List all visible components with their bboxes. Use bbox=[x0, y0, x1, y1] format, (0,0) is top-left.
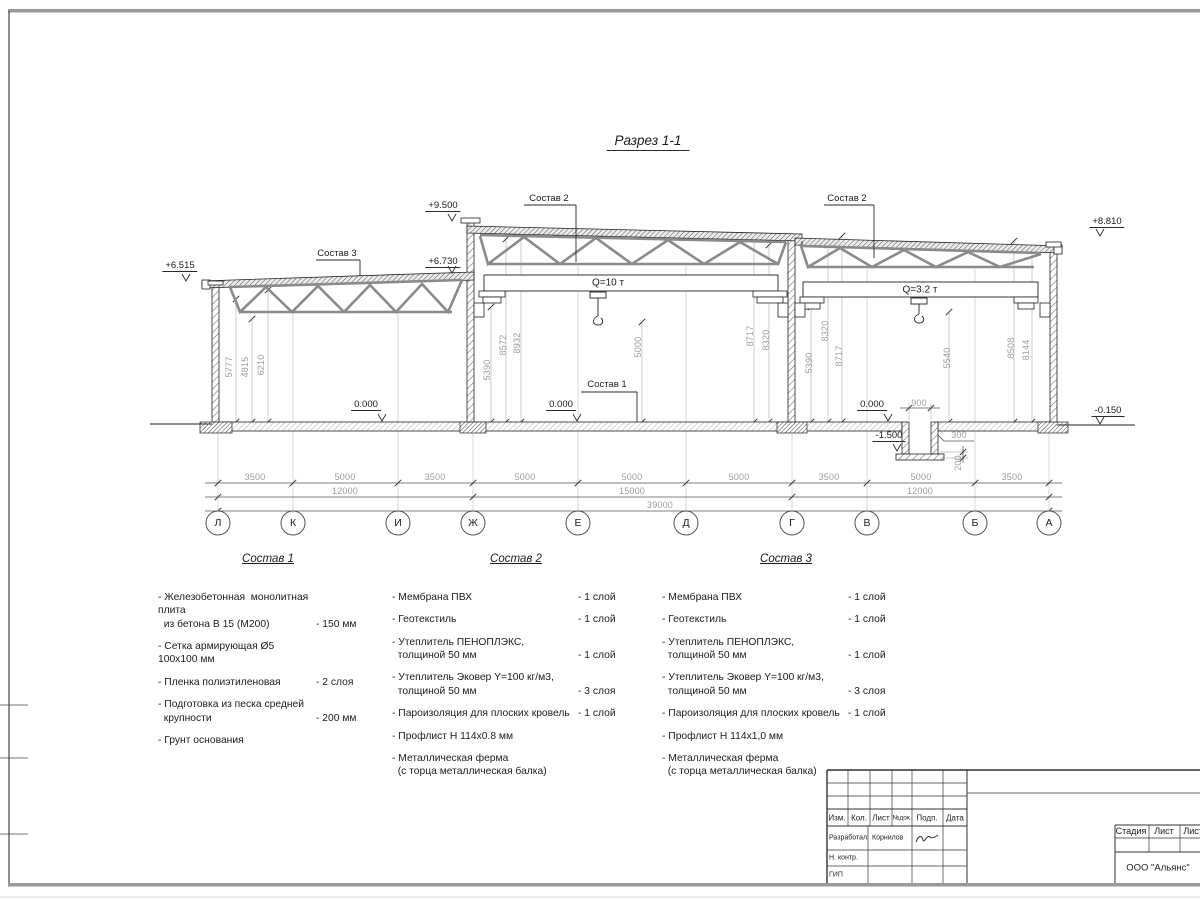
elevation-high-roof: +9.500 bbox=[425, 200, 460, 212]
composition-item-value: - 1 слой bbox=[848, 707, 910, 720]
composition-item-name: - Пароизоляция для плоских кровель bbox=[662, 707, 848, 720]
height-dim: 8508 bbox=[1006, 338, 1016, 359]
composition-item: - Мембрана ПВХ - 1 слой bbox=[392, 591, 640, 604]
composition-item: - Железобетонная монолитная плита из бет… bbox=[158, 591, 378, 631]
composition-item: - Металлическая ферма (с торца металличе… bbox=[662, 752, 910, 779]
stamp-developer-name: Корнилов bbox=[872, 835, 903, 842]
block-dim: 12000 bbox=[332, 486, 358, 496]
composition-item: - Грунт основания bbox=[158, 734, 378, 747]
block-dim: 12000 bbox=[907, 486, 933, 496]
composition-item-value: - 1 слой bbox=[578, 707, 640, 720]
composition-list-2: Состав 2 - Мембрана ПВХ - 1 слой - Геоте… bbox=[392, 552, 640, 788]
pit-wall-dim: 300 bbox=[951, 430, 967, 440]
composition-item-value: - 1 слой bbox=[848, 591, 910, 604]
crane-capacity-right: Q=3.2 т bbox=[903, 285, 938, 296]
span-dim: 5000 bbox=[515, 472, 536, 482]
composition-item-name: - Утеплитель ПЕНОПЛЭКС, толщиной 50 мм bbox=[662, 636, 848, 663]
composition-item: - Геотекстиль - 1 слой bbox=[392, 613, 640, 626]
height-dim: 6210 bbox=[256, 355, 266, 376]
height-dim: 8320 bbox=[820, 321, 830, 342]
stamp-stage-header: Стадия bbox=[1116, 826, 1147, 836]
crane-capacity-mid: Q=10 т bbox=[592, 278, 624, 289]
composition-item-name: - Утеплитель Эковер Y=100 кг/м3, толщино… bbox=[662, 671, 848, 698]
composition-item-name: - Утеплитель ПЕНОПЛЭКС, толщиной 50 мм bbox=[392, 636, 578, 663]
axis-bubble-label: Ж bbox=[468, 517, 478, 529]
elevation-mark-icon bbox=[182, 274, 190, 281]
axis-bubble-label: А bbox=[1045, 517, 1052, 529]
composition-item: - Пароизоляция для плоских кровель - 1 с… bbox=[662, 707, 910, 720]
height-dim: 4815 bbox=[240, 357, 250, 378]
composition-item-name: - Утеплитель Эковер Y=100 кг/м3, толщино… bbox=[392, 671, 578, 698]
layer-ref-s1: Состав 1 bbox=[587, 379, 626, 390]
composition-item: - Пароизоляция для плоских кровель - 1 с… bbox=[392, 707, 640, 720]
composition-item-value: - 3 слоя bbox=[848, 685, 910, 698]
height-dim: 8572 bbox=[498, 335, 508, 356]
composition-item-name: - Металлическая ферма (с торца металличе… bbox=[392, 752, 578, 779]
composition-item-name: - Пароизоляция для плоских кровель bbox=[392, 707, 578, 720]
span-dim: 5000 bbox=[729, 472, 750, 482]
composition-list-1: Состав 1 - Железобетонная монолитная пли… bbox=[158, 552, 378, 756]
stamp-col-list: Лист bbox=[872, 814, 889, 823]
height-dim: 8144 bbox=[1021, 340, 1031, 361]
block-dim: 15000 bbox=[619, 486, 645, 496]
stamp-role-developer: Разработал bbox=[829, 835, 867, 842]
span-dim: 3500 bbox=[425, 472, 446, 482]
elevation-floor-right: 0.000 bbox=[857, 399, 887, 411]
axis-bubble-label: Д bbox=[682, 517, 689, 529]
composition-item-value: - 2 слоя bbox=[316, 676, 378, 689]
span-dim: 3500 bbox=[245, 472, 266, 482]
elevation-floor-mid: 0.000 bbox=[546, 399, 576, 411]
layer-ref-s3: Состав 3 bbox=[317, 248, 356, 259]
composition-item-name: - Пленка полиэтиленовая bbox=[158, 676, 316, 689]
composition-items: - Мембрана ПВХ - 1 слой - Геотекстиль - … bbox=[662, 591, 910, 779]
floor-and-pit bbox=[150, 422, 1135, 460]
height-dim: 5390 bbox=[804, 353, 814, 374]
axis-bubble-label: К bbox=[290, 517, 296, 529]
composition-item-name: - Мембрана ПВХ bbox=[662, 591, 848, 604]
stamp-col-podp: Подп. bbox=[916, 814, 937, 823]
composition-item-value: - 1 слой bbox=[848, 613, 910, 626]
composition-item: - Геотекстиль - 1 слой bbox=[662, 613, 910, 626]
leaders-and-marks bbox=[182, 205, 1104, 451]
composition-item-value: - 1 слой bbox=[848, 649, 910, 662]
elevation-left-eave: +6.515 bbox=[162, 260, 197, 272]
elevation-pit-bottom: -1.500 bbox=[873, 430, 906, 442]
composition-item-value: - 150 мм bbox=[316, 618, 378, 631]
composition-title: Состав 1 bbox=[158, 552, 378, 567]
axis-bubble-label: Л bbox=[215, 517, 222, 529]
span-dim: 5000 bbox=[335, 472, 356, 482]
axis-bubble-label: Б bbox=[972, 517, 979, 529]
composition-item: - Утеплитель Эковер Y=100 кг/м3, толщино… bbox=[392, 671, 640, 698]
elevation-right-roof: +8.810 bbox=[1089, 216, 1124, 228]
composition-item-name: - Железобетонная монолитная плита из бет… bbox=[158, 591, 316, 631]
composition-item: - Профлист Н 114х0.8 мм bbox=[392, 730, 640, 743]
composition-items: - Мембрана ПВХ - 1 слой - Геотекстиль - … bbox=[392, 591, 640, 779]
axis-bubble-label: Г bbox=[789, 517, 795, 529]
composition-item-name: - Профлист Н 114х1,0 мм bbox=[662, 730, 848, 743]
composition-item-name: - Геотекстиль bbox=[392, 613, 578, 626]
axis-bubble-label: Е bbox=[574, 517, 581, 529]
composition-item: - Утеплитель Эковер Y=100 кг/м3, толщино… bbox=[662, 671, 910, 698]
composition-item-value: - 3 слоя bbox=[578, 685, 640, 698]
composition-item-name: - Профлист Н 114х0.8 мм bbox=[392, 730, 578, 743]
span-dim: 5000 bbox=[911, 472, 932, 482]
stamp-sheet-header: Лист bbox=[1154, 826, 1174, 836]
composition-item: - Профлист Н 114х1,0 мм bbox=[662, 730, 910, 743]
axis-bubbles bbox=[206, 511, 1061, 535]
layer-ref-s2-right: Состав 2 bbox=[827, 193, 866, 204]
height-dim: 8717 bbox=[745, 326, 755, 347]
stamp-sheets-header: Листов bbox=[1183, 826, 1200, 836]
drawing-title: Разрез 1-1 bbox=[607, 133, 690, 151]
signature-icon bbox=[916, 835, 938, 842]
height-dim: 8320 bbox=[761, 330, 771, 351]
composition-item-value: - 1 слой bbox=[578, 591, 640, 604]
axis-bubble-label: В bbox=[863, 517, 870, 529]
composition-item-value: - 200 мм bbox=[316, 712, 378, 725]
pit-slab-dim: 200 bbox=[953, 455, 963, 471]
stamp-col-kol: Кол. bbox=[851, 814, 867, 823]
stamp-col-izm: Изм. bbox=[828, 814, 845, 823]
composition-item: - Металлическая ферма (с торца металличе… bbox=[392, 752, 640, 779]
composition-item: - Сетка армирующая Ø5 100х100 мм bbox=[158, 640, 378, 667]
composition-item-value: - 1 слой bbox=[578, 613, 640, 626]
height-dim: 8717 bbox=[834, 346, 844, 367]
composition-item-value: - 1 слой bbox=[578, 649, 640, 662]
stamp-role-ncontrol: Н. контр. bbox=[829, 855, 858, 862]
elevation-ground-right: -0.150 bbox=[1092, 405, 1125, 417]
span-dim: 3500 bbox=[819, 472, 840, 482]
axis-bubble-label: И bbox=[394, 517, 402, 529]
stamp-col-ndok: №док. bbox=[892, 815, 911, 822]
composition-item: - Пленка полиэтиленовая - 2 слоя bbox=[158, 676, 378, 689]
height-dim: 8932 bbox=[512, 333, 522, 354]
composition-item: - Мембрана ПВХ - 1 слой bbox=[662, 591, 910, 604]
span-dim: 3500 bbox=[1002, 472, 1023, 482]
layer-ref-s2-mid: Состав 2 bbox=[529, 193, 568, 204]
crane-beams bbox=[474, 275, 1050, 325]
stamp-col-data: Дата bbox=[946, 814, 964, 823]
composition-title: Состав 2 bbox=[392, 552, 640, 567]
pit-width-dim: 900 bbox=[911, 398, 927, 408]
composition-item-name: - Подготовка из песка средней крупности bbox=[158, 698, 316, 725]
stamp-company: ООО "Альянс" bbox=[1126, 863, 1190, 874]
composition-list-3: Состав 3 - Мембрана ПВХ - 1 слой - Геоте… bbox=[662, 552, 910, 788]
height-dim: 5000 bbox=[633, 337, 643, 358]
height-dim: 5390 bbox=[482, 360, 492, 381]
height-dim: 5540 bbox=[942, 348, 952, 369]
composition-item: - Утеплитель ПЕНОПЛЭКС, толщиной 50 мм -… bbox=[392, 636, 640, 663]
sheet: Разрез 1-1 +6.515 +6.730 +9.500 +8.810 -… bbox=[0, 0, 1200, 900]
span-dim: 5000 bbox=[622, 472, 643, 482]
height-dim: 5777 bbox=[224, 357, 234, 378]
stamp-role-gip: ГИП bbox=[829, 872, 843, 879]
composition-item: - Подготовка из песка средней крупности … bbox=[158, 698, 378, 725]
elevation-low-roof: +6.730 bbox=[425, 256, 460, 268]
composition-item: - Утеплитель ПЕНОПЛЭКС, толщиной 50 мм -… bbox=[662, 636, 910, 663]
drawing-sheet: { "title": "Разрез 1-1", "section": { "e… bbox=[0, 0, 1200, 900]
composition-title: Состав 3 bbox=[662, 552, 910, 567]
composition-item-name: - Сетка армирующая Ø5 100х100 мм bbox=[158, 640, 316, 667]
elevation-floor-left: 0.000 bbox=[351, 399, 381, 411]
composition-item-name: - Мембрана ПВХ bbox=[392, 591, 578, 604]
composition-item-name: - Металлическая ферма (с торца металличе… bbox=[662, 752, 848, 779]
total-dim: 39000 bbox=[647, 500, 673, 510]
composition-item-name: - Геотекстиль bbox=[662, 613, 848, 626]
composition-items: - Железобетонная монолитная плита из бет… bbox=[158, 591, 378, 747]
composition-item-name: - Грунт основания bbox=[158, 734, 316, 747]
